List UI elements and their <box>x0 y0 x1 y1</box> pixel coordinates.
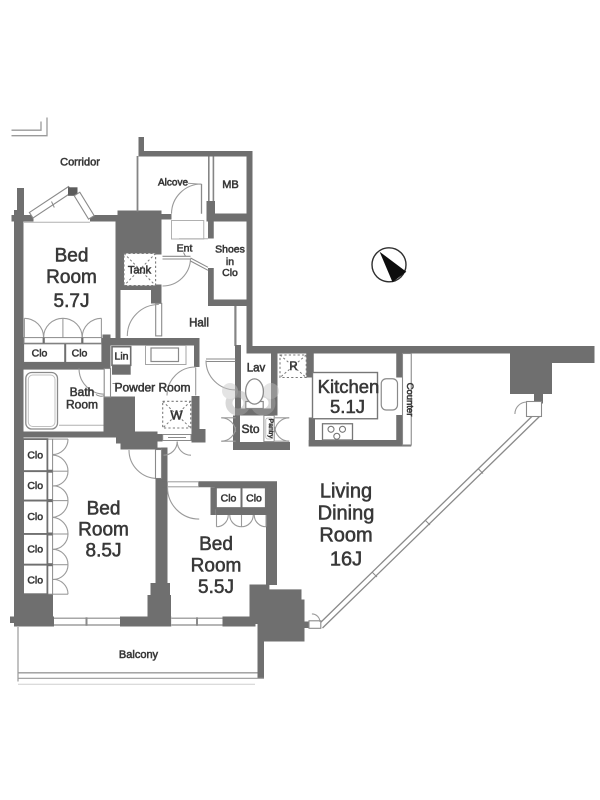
svg-text:Clo: Clo <box>27 511 43 523</box>
svg-text:Room: Room <box>66 398 98 412</box>
svg-text:Room: Room <box>46 267 97 288</box>
svg-text:Alcove: Alcove <box>158 178 188 189</box>
svg-text:8.5J: 8.5J <box>86 541 122 562</box>
svg-text:Shoes: Shoes <box>215 244 245 256</box>
svg-text:W: W <box>170 408 183 423</box>
svg-text:MB: MB <box>222 179 239 191</box>
svg-text:Clo: Clo <box>27 480 43 492</box>
svg-text:Ent: Ent <box>177 243 193 255</box>
svg-text:Kitchen: Kitchen <box>318 376 380 397</box>
svg-text:Room: Room <box>319 525 372 547</box>
svg-text:Bed: Bed <box>55 246 89 267</box>
svg-text:Hall: Hall <box>189 318 209 330</box>
svg-text:Living: Living <box>320 481 372 503</box>
svg-text:Tank: Tank <box>128 265 152 277</box>
svg-text:16J: 16J <box>330 549 362 571</box>
svg-text:Clo: Clo <box>27 544 43 556</box>
svg-text:R: R <box>289 361 297 373</box>
svg-text:Clo: Clo <box>221 493 237 505</box>
svg-text:Room: Room <box>78 520 129 541</box>
svg-text:Balcony: Balcony <box>119 649 159 661</box>
svg-text:Room: Room <box>191 556 242 577</box>
svg-text:Clo: Clo <box>27 450 43 462</box>
svg-text:Corridor: Corridor <box>60 157 100 169</box>
svg-text:Sto: Sto <box>241 422 259 436</box>
svg-text:Pantry: Pantry <box>267 419 274 439</box>
svg-text:Clo: Clo <box>222 267 238 279</box>
svg-text:Lav: Lav <box>247 363 266 375</box>
svg-text:Dining: Dining <box>318 503 375 525</box>
svg-text:Clo: Clo <box>246 493 262 505</box>
svg-text:Bed: Bed <box>199 534 233 555</box>
svg-text:5.5J: 5.5J <box>198 577 234 598</box>
svg-text:5.1J: 5.1J <box>330 396 365 417</box>
svg-text:Lin: Lin <box>114 351 128 363</box>
svg-text:Bed: Bed <box>87 499 121 520</box>
svg-text:5.7J: 5.7J <box>54 291 90 312</box>
svg-text:Counter: Counter <box>404 383 415 417</box>
svg-text:Clo: Clo <box>27 575 43 587</box>
svg-text:Powder Room: Powder Room <box>114 381 190 395</box>
svg-text:Clo: Clo <box>32 348 48 360</box>
svg-text:Clo: Clo <box>72 348 88 360</box>
